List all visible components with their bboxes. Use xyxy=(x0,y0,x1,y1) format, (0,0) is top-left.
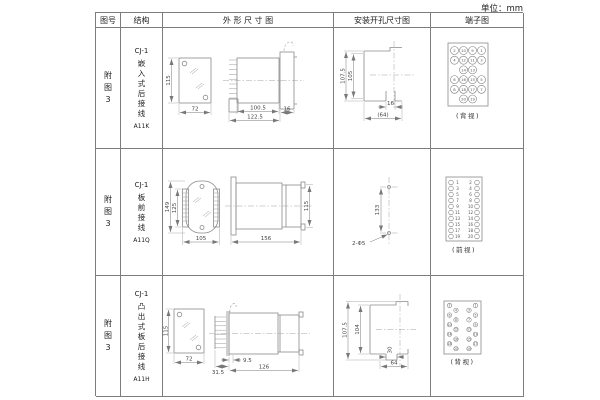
dim-cutout-width-overall: (64) xyxy=(377,113,388,119)
dim-hole-pitch: 133 xyxy=(375,204,381,215)
col-header-terminal: 端子图 xyxy=(431,13,524,28)
a11h-mounting-svg: 107.5 104 30 64 xyxy=(334,276,430,396)
a11q-terminal-circles: 1357911131517192468101214161820 xyxy=(449,180,480,239)
a11k-cutout-outline xyxy=(364,41,416,108)
row3-terminal-drawing: 2468101214161820135791113151719 (背视) xyxy=(431,276,524,397)
row1-code-label: A11K xyxy=(134,123,150,130)
dim-cutout-inner-height: 105 xyxy=(348,70,354,81)
dim-a11q-side-length: 156 xyxy=(261,236,272,242)
row1-structure: CJ-1 嵌 入 式 后 接 线 A11K xyxy=(121,28,163,149)
a11k-terminal-circles: 2109141211314136161558181772019 xyxy=(451,47,486,104)
a11k-side-dims: 100.5 122.5 16 xyxy=(229,104,294,122)
svg-text:17: 17 xyxy=(473,342,477,346)
dim-hole-spec: 2-Φ5 xyxy=(352,241,366,247)
row1-terminal-drawing: 2109141211314136161558181772019 (背视) xyxy=(431,28,524,149)
a11h-terminal-circles: 2468101214161820135791113151719 xyxy=(447,303,477,351)
svg-text:19: 19 xyxy=(470,96,475,101)
svg-text:9: 9 xyxy=(474,323,476,327)
dim-a11h-front-width: 72 xyxy=(186,357,193,363)
row2-terminal-drawing: 1357911131517192468101214161820 (前视) xyxy=(431,149,524,276)
row3-code-label: A11H xyxy=(133,376,149,383)
dim-a11h-inner-height: 104 xyxy=(355,324,361,335)
row3-outline-drawing: 115 72 xyxy=(163,276,334,397)
svg-text:18: 18 xyxy=(447,342,451,346)
col-header-mounting: 安装开孔尺寸图 xyxy=(334,13,431,28)
dim-a11h-width-overall: 64 xyxy=(391,361,398,367)
svg-text:12: 12 xyxy=(454,328,458,332)
a11k-cutout-dims: 107.5 105 16 (64) xyxy=(341,51,404,121)
svg-text:13: 13 xyxy=(455,216,461,221)
row2-model-label: CJ-1 xyxy=(135,181,149,189)
svg-text:20: 20 xyxy=(454,347,458,351)
col-header-fig-no: 图号 xyxy=(96,13,121,28)
row1-model-label: CJ-1 xyxy=(135,47,149,55)
row2-fig-no-text: 附 图 3 xyxy=(104,194,112,230)
row2-fig-no: 附 图 3 xyxy=(96,149,121,276)
svg-text:11: 11 xyxy=(470,58,475,63)
row3-fig-no-text: 附 图 3 xyxy=(104,318,112,354)
svg-text:13: 13 xyxy=(473,333,477,337)
dim-a11q-side-height: 115 xyxy=(304,200,310,211)
svg-text:1: 1 xyxy=(456,180,459,185)
row1-fig-no-text: 附 图 3 xyxy=(104,70,112,106)
svg-text:4: 4 xyxy=(469,186,472,191)
row3-fig-no: 附 图 3 xyxy=(96,276,121,397)
row2-code-label: A11Q xyxy=(133,237,149,244)
a11k-view-label: (背视) xyxy=(456,111,480,120)
svg-text:18: 18 xyxy=(461,87,466,92)
dim-a11q-front-width: 105 xyxy=(196,236,207,242)
dim-a11h-slot-width: 30 xyxy=(388,346,394,353)
svg-text:1: 1 xyxy=(474,304,476,308)
dim-a11q-inner-height: 125 xyxy=(172,202,178,213)
svg-text:16: 16 xyxy=(454,337,458,341)
row2-structure-text: 板 前 接 线 xyxy=(138,193,146,233)
spec-table: 图号 结构 外 形 尺 寸 图 安装开孔尺寸图 端子图 附 图 3 CJ-1 嵌… xyxy=(95,12,523,396)
a11h-cutout-dims: 107.5 104 30 64 xyxy=(343,302,409,370)
dim-a11h-outer-height: 107.5 xyxy=(343,322,349,338)
col-header-mounting-label: 安装开孔尺寸图 xyxy=(354,15,410,26)
dim-cutout-outer-height: 107.5 xyxy=(341,68,347,84)
col-header-structure-label: 结构 xyxy=(134,15,150,26)
row1-fig-no: 附 图 3 xyxy=(96,28,121,149)
a11k-front-view xyxy=(179,58,211,103)
a11h-terminal-svg: 2468101214161820135791113151719 (背视) xyxy=(431,276,523,396)
svg-text:14: 14 xyxy=(461,67,466,72)
col-header-outline-label: 外 形 尺 寸 图 xyxy=(223,15,273,26)
a11q-holes xyxy=(380,177,398,244)
dim-flange: 16 xyxy=(284,107,291,113)
svg-text:8: 8 xyxy=(469,198,472,203)
dim-a11q-front-height: 149 xyxy=(165,201,171,212)
a11q-hole-dims: 133 2-Φ5 xyxy=(352,189,388,248)
dim-a11h-front-height: 115 xyxy=(164,325,170,336)
col-header-fig-no-label: 图号 xyxy=(100,15,116,26)
svg-text:3: 3 xyxy=(456,186,459,191)
row3-structure-text: 凸 出 式 板 后 接 线 xyxy=(138,302,146,372)
svg-text:18: 18 xyxy=(468,228,474,233)
a11q-mounting-svg: 133 2-Φ5 xyxy=(334,149,430,275)
svg-text:15: 15 xyxy=(455,222,461,227)
row3-structure: CJ-1 凸 出 式 板 后 接 线 A11H xyxy=(121,276,163,397)
svg-text:16: 16 xyxy=(468,222,474,227)
dim-cutout-width: 16 xyxy=(387,101,394,107)
svg-text:3: 3 xyxy=(468,309,470,313)
svg-text:15: 15 xyxy=(470,77,475,82)
svg-text:11: 11 xyxy=(455,210,461,215)
svg-text:8: 8 xyxy=(455,318,457,322)
a11h-view-label: (背视) xyxy=(450,357,474,366)
col-header-terminal-label: 端子图 xyxy=(465,15,489,26)
row3-model-label: CJ-1 xyxy=(135,290,149,298)
svg-text:19: 19 xyxy=(467,347,471,351)
dim-front-width: 72 xyxy=(192,107,199,113)
svg-text:5: 5 xyxy=(456,192,459,197)
svg-text:6: 6 xyxy=(448,313,450,317)
a11h-cutout-outline xyxy=(370,294,416,366)
a11h-front-view xyxy=(174,309,204,353)
svg-text:19: 19 xyxy=(455,234,461,239)
a11q-front-dims: 149 125 105 xyxy=(165,181,220,245)
a11k-front-dims: 115 72 xyxy=(166,58,211,115)
col-header-structure: 结构 xyxy=(121,13,163,28)
svg-text:6: 6 xyxy=(469,192,472,197)
svg-text:11: 11 xyxy=(467,328,471,332)
svg-text:20: 20 xyxy=(461,96,466,101)
svg-text:9: 9 xyxy=(456,204,459,209)
svg-text:13: 13 xyxy=(470,67,475,72)
a11q-front-view xyxy=(183,181,220,233)
a11q-terminal-svg: 1357911131517192468101214161820 (前视) xyxy=(431,149,523,275)
row2-mounting-drawing: 133 2-Φ5 xyxy=(334,149,431,276)
svg-text:7: 7 xyxy=(456,198,459,203)
a11k-mounting-svg: 107.5 105 16 (64) xyxy=(334,28,430,148)
a11k-outline-svg: 115 72 100.5 xyxy=(163,28,333,148)
a11h-side-view xyxy=(209,304,310,356)
row1-outline-drawing: 115 72 100.5 xyxy=(163,28,334,149)
a11h-outline-svg: 115 72 xyxy=(163,276,333,396)
a11q-outline-svg: 149 125 105 1 xyxy=(163,149,333,275)
dim-front-height: 115 xyxy=(166,75,172,86)
dim-pin-length: 31.5 xyxy=(212,370,225,376)
svg-text:10: 10 xyxy=(461,48,466,53)
svg-text:10: 10 xyxy=(447,323,451,327)
col-header-outline: 外 形 尺 寸 图 xyxy=(163,13,334,28)
svg-text:4: 4 xyxy=(455,309,457,313)
dim-total-depth: 122.5 xyxy=(247,115,263,121)
svg-text:20: 20 xyxy=(468,234,474,239)
svg-text:17: 17 xyxy=(455,228,461,233)
svg-text:12: 12 xyxy=(468,210,474,215)
row1-structure-text: 嵌 入 式 后 接 线 xyxy=(138,59,146,119)
a11h-front-dims: 115 72 xyxy=(164,309,205,364)
svg-text:5: 5 xyxy=(474,313,476,317)
svg-text:14: 14 xyxy=(447,333,451,337)
svg-text:7: 7 xyxy=(468,318,470,322)
svg-text:10: 10 xyxy=(468,204,474,209)
a11k-terminal-svg: 2109141211314136161558181772019 (背视) xyxy=(431,28,523,148)
a11q-side-view xyxy=(225,177,312,235)
svg-text:14: 14 xyxy=(468,216,474,221)
svg-text:16: 16 xyxy=(461,77,466,82)
svg-text:2: 2 xyxy=(448,304,450,308)
row2-structure: CJ-1 板 前 接 线 A11Q xyxy=(121,149,163,276)
svg-text:17: 17 xyxy=(470,87,475,92)
row3-mounting-drawing: 107.5 104 30 64 xyxy=(334,276,431,397)
a11q-view-label: (前视) xyxy=(452,245,476,254)
svg-text:2: 2 xyxy=(469,180,472,185)
row1-mounting-drawing: 107.5 105 16 (64) xyxy=(334,28,431,149)
a11k-side-view xyxy=(223,42,304,112)
svg-text:12: 12 xyxy=(461,58,466,63)
dim-a11h-side-length: 126 xyxy=(259,365,270,371)
row2-outline-drawing: 149 125 105 1 xyxy=(163,149,334,276)
dim-pin-offset: 9.5 xyxy=(243,358,252,364)
svg-text:15: 15 xyxy=(467,337,471,341)
dim-body-depth: 100.5 xyxy=(250,106,266,112)
datasheet-page: 单位：mm 图号 结构 外 形 尺 寸 图 安装开孔尺寸图 端子图 附 图 3 … xyxy=(0,0,600,400)
